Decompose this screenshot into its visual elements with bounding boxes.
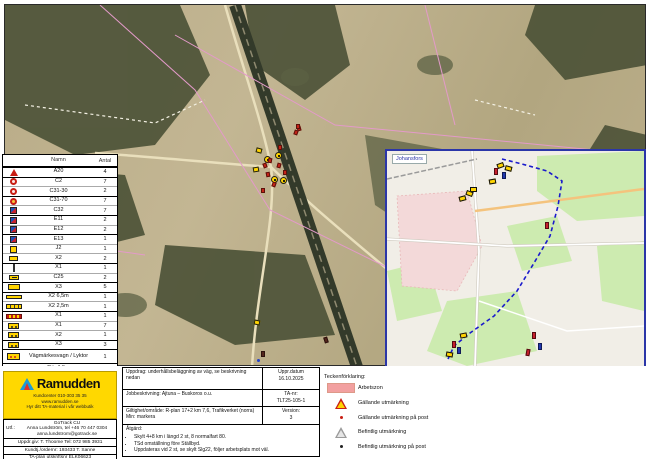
sign-name: C31-70 bbox=[24, 198, 93, 204]
work-sign-marker bbox=[268, 158, 273, 164]
contact-info-block: Utf.: GoTrack CU Anna Lundström, tel +46… bbox=[3, 419, 117, 459]
measures-list: Skylt 4+8 km i längd 2 st, 8 normalfart … bbox=[134, 434, 316, 454]
sign-count: 7 bbox=[93, 208, 117, 214]
inset-red-marker bbox=[545, 222, 549, 229]
sign-row: X11 bbox=[3, 263, 117, 273]
tri-sign-icon bbox=[10, 169, 18, 176]
sign-row: X21 bbox=[3, 330, 117, 340]
preparer-row: Utf.: GoTrack CU Anna Lundström, tel +46… bbox=[4, 420, 116, 438]
yel-wide-sign-icon bbox=[8, 284, 20, 290]
sign-count: 2 bbox=[93, 256, 117, 262]
ramudden-brand-box: Ramudden Kundcenter 010-303 35 35 www.ra… bbox=[3, 371, 117, 419]
sign-name: C25 bbox=[24, 275, 93, 281]
area-pink-icon bbox=[327, 383, 355, 393]
sign-count: 1 bbox=[93, 332, 117, 338]
sign-count: 1 bbox=[93, 304, 117, 310]
job-description: Jobbeskrivning: Ajtuna – Buskoros o.u. bbox=[123, 390, 263, 406]
title-block: Uppdrag: underhållsbeläggning av väg, se… bbox=[122, 367, 320, 457]
sq-br-sign-icon bbox=[10, 217, 17, 224]
sign-name: X2 2,5m bbox=[24, 304, 93, 310]
sign-name: X3 bbox=[24, 342, 93, 348]
sign-list-panel: Namn Antal A204C27C31-302C31-707C327E112… bbox=[2, 154, 118, 368]
sign-row: C31-302 bbox=[3, 186, 117, 196]
sq-br-sign-icon bbox=[10, 226, 17, 233]
sign-count: 2 bbox=[93, 188, 117, 194]
map-legend-items: ArbetszonGällande utmärkningGällande utm… bbox=[324, 383, 489, 451]
legend-item-label: Befintlig utmärkning på post bbox=[358, 444, 426, 450]
yel-long2-sign-icon bbox=[6, 304, 22, 309]
circ-sign-icon bbox=[10, 178, 17, 185]
yel-dot-sign-icon bbox=[8, 342, 19, 348]
circ-o-sign-icon bbox=[10, 198, 17, 205]
post-marker bbox=[257, 359, 260, 362]
map-legend-panel: Teckenförklaring: ArbetszonGällande utmä… bbox=[324, 374, 489, 456]
inset-red-marker bbox=[494, 168, 498, 175]
existing-sign-marker bbox=[261, 351, 265, 357]
sign-name: X2 bbox=[24, 333, 93, 339]
inset-red-marker bbox=[532, 332, 536, 339]
legend-item-label: Befintlig utmärkning bbox=[358, 429, 406, 435]
sign-row: X11 bbox=[3, 311, 117, 321]
yel-sign-icon bbox=[9, 256, 18, 261]
sq-br-sign-icon bbox=[10, 236, 17, 243]
yel-h-sign-icon bbox=[10, 246, 17, 253]
sign-name: E11 bbox=[24, 217, 93, 223]
sign-name: X1 bbox=[24, 323, 93, 329]
inset-sign-marker bbox=[446, 351, 454, 357]
inset-blue-marker bbox=[538, 343, 542, 350]
yel-arrow-sign-icon bbox=[9, 275, 19, 280]
sign-count: 7 bbox=[93, 198, 117, 204]
sign-name: X2 bbox=[24, 256, 93, 262]
dot-red-icon bbox=[340, 416, 343, 419]
sign-count: 2 bbox=[93, 275, 117, 281]
sign-name: C32 bbox=[24, 208, 93, 214]
date-value: 16.10.2025 bbox=[265, 376, 317, 383]
sign-count: 3 bbox=[93, 342, 117, 348]
sign-row: C252 bbox=[3, 273, 117, 283]
sign-row: E131 bbox=[3, 234, 117, 244]
preparer-email: anna.lundstrom@gotrack.se bbox=[20, 432, 114, 438]
work-sign-marker bbox=[296, 124, 300, 129]
yellow-sign-marker bbox=[254, 319, 261, 325]
yel-long-sign-icon bbox=[6, 295, 22, 299]
stripe-sign-icon bbox=[6, 314, 22, 319]
legend-item: Befintlig utmärkning på post bbox=[324, 442, 489, 451]
legend-item-label: Gällande utmärkning på post bbox=[358, 415, 428, 421]
legend-item-label: Arbetszon bbox=[358, 385, 383, 391]
dot-dark-icon bbox=[340, 445, 343, 448]
legend-item: Befintlig utmärkning bbox=[324, 427, 489, 438]
ramudden-logo: Ramudden bbox=[4, 376, 116, 391]
triangle-gray-icon bbox=[335, 427, 347, 438]
sign-count: 1 bbox=[93, 354, 117, 360]
yel-dot-sign-icon bbox=[8, 323, 19, 329]
work-sign-marker bbox=[283, 170, 287, 175]
inset-blue-marker bbox=[457, 347, 461, 354]
sign-row: X2 2,5m1 bbox=[3, 301, 117, 311]
sign-row: X33 bbox=[3, 340, 117, 350]
preparer-label: Utf.: bbox=[6, 421, 20, 438]
inset-place-label: Johansfors bbox=[392, 154, 427, 164]
yel-dot-sign-icon bbox=[8, 332, 19, 338]
sign-count: 4 bbox=[93, 169, 117, 175]
sign-row: E122 bbox=[3, 225, 117, 235]
vagn-sign-icon bbox=[7, 353, 20, 360]
sign-name: Vägmärkesvagn / Lyktor bbox=[24, 354, 93, 360]
sign-table-body: A204C27C31-302C31-707C327E112E122E131J21… bbox=[3, 167, 117, 392]
sign-name: C2 bbox=[24, 179, 93, 185]
legend-item: Arbetszon bbox=[324, 383, 489, 393]
sign-count: 1 bbox=[93, 265, 117, 271]
sign-row: J21 bbox=[3, 244, 117, 254]
sign-row: Vägmärkesvagn / Lyktor1 bbox=[3, 349, 117, 363]
sign-row: A204 bbox=[3, 167, 117, 177]
legend-item-label: Gällande utmärkning bbox=[358, 400, 409, 406]
title-band: Ramudden Kundcenter 010-303 35 35 www.ra… bbox=[2, 366, 648, 457]
assignment-text: Uppdrag: underhållsbeläggning av väg, se… bbox=[123, 368, 263, 389]
sign-row: X2 6,5m1 bbox=[3, 292, 117, 302]
ramudden-contact-line3: Hyr ditt TA-material i vår webbutik bbox=[4, 404, 116, 410]
measure-bullet: Skylt 4+8 km i längd 2 st, 8 normalfart … bbox=[134, 434, 316, 441]
sign-row: X17 bbox=[3, 321, 117, 331]
sq-br-sign-icon bbox=[10, 207, 17, 214]
sign-name: E13 bbox=[24, 237, 93, 243]
legend-item: Gällande utmärkning bbox=[324, 398, 489, 409]
printout-row: TA-plan utskriftsnr ELK06623 bbox=[4, 454, 116, 459]
yellow-sign-marker bbox=[253, 167, 260, 173]
warning-sign-marker bbox=[275, 152, 282, 159]
sign-count: 1 bbox=[93, 313, 117, 319]
sign-row: C27 bbox=[3, 177, 117, 187]
version-value: 3 bbox=[265, 415, 317, 422]
sign-row: E112 bbox=[3, 215, 117, 225]
ramudden-wordmark: Ramudden bbox=[37, 376, 100, 391]
ta-plan-document: Namn Antal A204C27C31-302C31-707C327E112… bbox=[0, 0, 650, 459]
client-row: Uppdr.giv: T. Thoome Tel: 072 985 3931 bbox=[4, 438, 116, 446]
sign-name: C31-30 bbox=[24, 189, 93, 195]
warning-sign-marker bbox=[280, 177, 287, 184]
sign-count: 7 bbox=[93, 323, 117, 329]
sign-name: E12 bbox=[24, 227, 93, 233]
sign-count: 1 bbox=[93, 294, 117, 300]
circ-sign-icon bbox=[10, 188, 17, 195]
sign-name: X1 bbox=[24, 313, 93, 319]
validity-text: Giltighet/område: R-plan 17+2 km 7,6, Tr… bbox=[123, 407, 263, 424]
inset-blue-marker bbox=[502, 172, 506, 179]
sign-count: 2 bbox=[93, 227, 117, 233]
sign-name: X3 bbox=[24, 285, 93, 291]
sign-name: J2 bbox=[24, 246, 93, 252]
inset-terrain bbox=[387, 151, 644, 366]
sign-row: X35 bbox=[3, 282, 117, 292]
ta-number-value: TLT25-105-1 bbox=[265, 398, 317, 405]
order-row: Kundtj./ordernr: 193433 T. Sanne bbox=[4, 446, 116, 454]
sign-name: X2 6,5m bbox=[24, 294, 93, 300]
measures-section: Åtgärd: Skylt 4+8 km i längd 2 st, 8 nor… bbox=[123, 425, 319, 456]
sign-count-header: Antal bbox=[93, 158, 117, 164]
triangle-warning-icon bbox=[335, 398, 347, 409]
post-sign-icon bbox=[13, 264, 15, 272]
map-legend-title: Teckenförklaring: bbox=[324, 374, 489, 380]
work-sign-marker bbox=[266, 172, 271, 178]
ramudden-triangle-icon bbox=[20, 378, 34, 390]
sign-count: 1 bbox=[93, 236, 117, 242]
sign-row: C327 bbox=[3, 205, 117, 215]
legend-item: Gällande utmärkning på post bbox=[324, 413, 489, 422]
work-sign-marker bbox=[278, 145, 282, 150]
sign-table-header: Namn Antal bbox=[3, 155, 117, 167]
sign-count: 2 bbox=[93, 217, 117, 223]
sign-row: X22 bbox=[3, 253, 117, 263]
sign-row: C31-707 bbox=[3, 196, 117, 206]
sign-count: 5 bbox=[93, 284, 117, 290]
sign-name: X1 bbox=[24, 265, 93, 271]
measures-header: Åtgärd: bbox=[126, 426, 316, 433]
measure-bullet: TSd omställning före Ställbyd. bbox=[134, 441, 316, 448]
measure-bullet: Uppdateras vid 2 st, se skylt Slg22, föl… bbox=[134, 447, 316, 454]
sign-name: A20 bbox=[24, 169, 93, 175]
sign-name-header: Namn bbox=[24, 158, 93, 164]
inset-red-marker bbox=[452, 341, 456, 348]
sign-count: 1 bbox=[93, 246, 117, 252]
sign-count: 7 bbox=[93, 179, 117, 185]
overview-inset-map: Johansfors bbox=[385, 149, 646, 368]
work-sign-marker bbox=[261, 188, 265, 193]
